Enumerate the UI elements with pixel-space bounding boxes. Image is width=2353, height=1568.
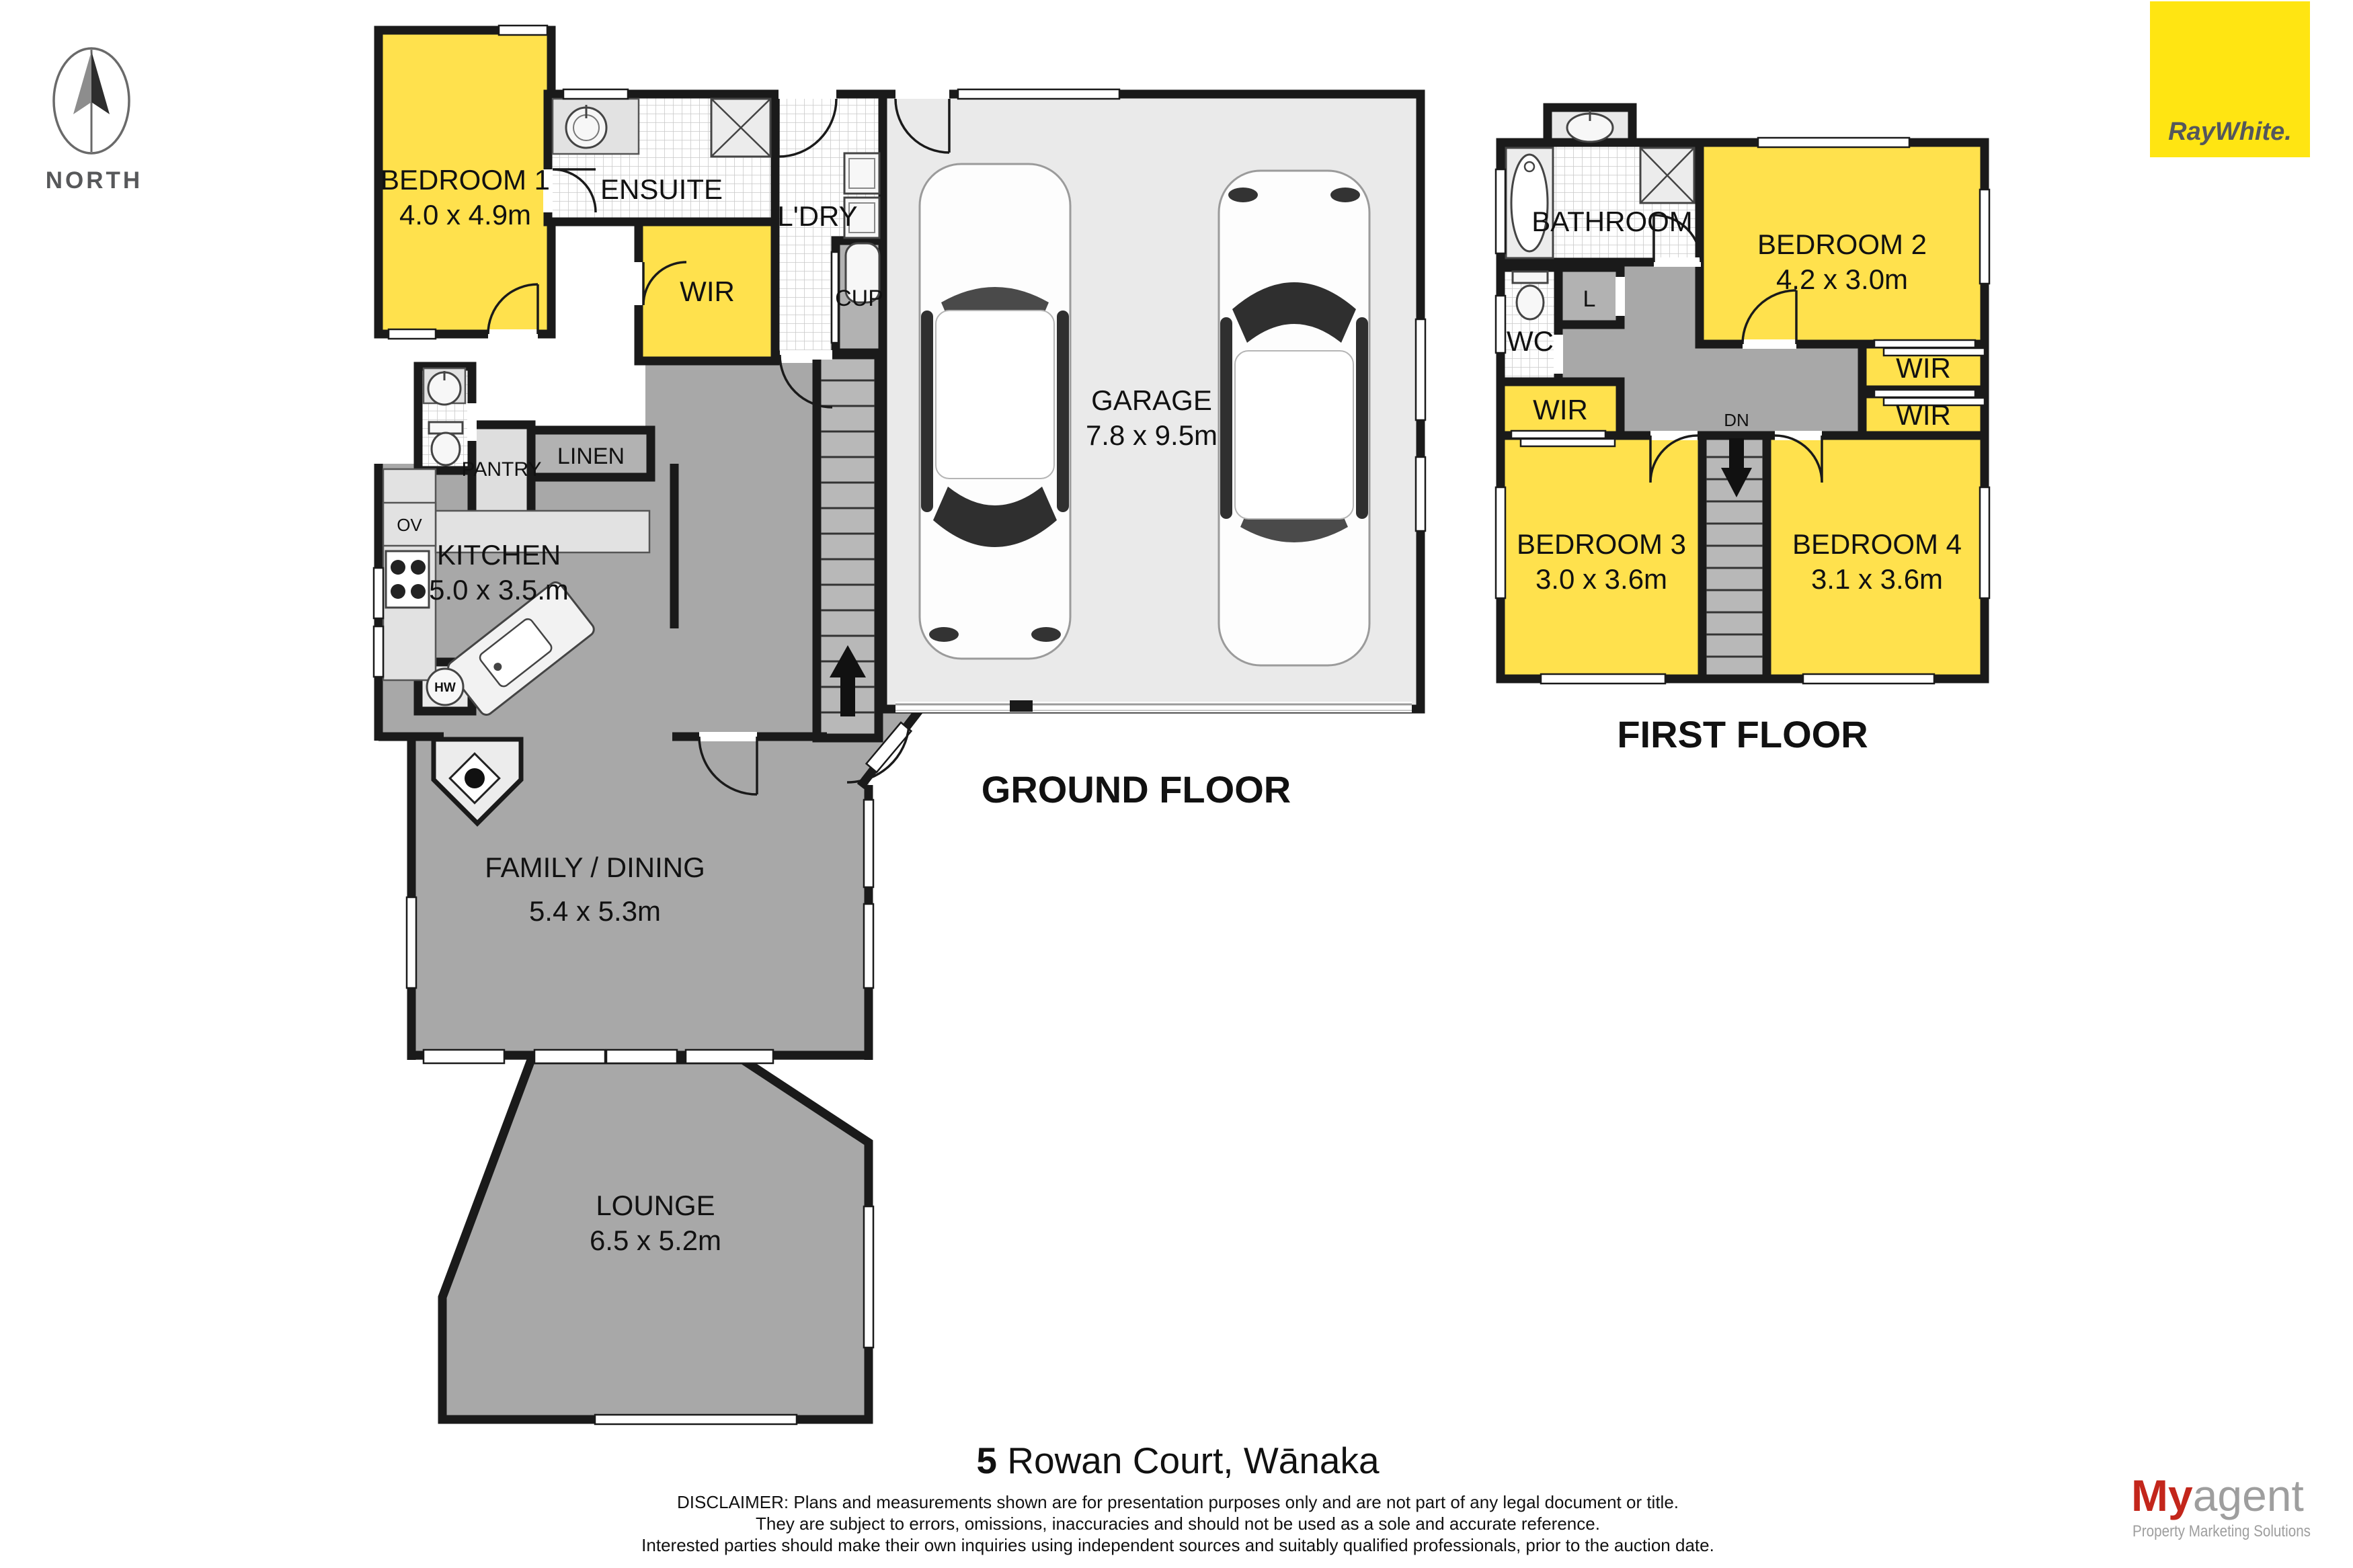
- myagent-agent: agent: [2193, 1471, 2304, 1520]
- bedroom3-dims: 3.0 x 3.6m: [1536, 563, 1667, 595]
- family-dining-label: FAMILY / DINING: [485, 852, 705, 883]
- bedroom1-dims: 4.0 x 4.9m: [399, 199, 531, 231]
- wir-right-lower-label: WIR: [1896, 399, 1951, 431]
- address-number: 5: [976, 1440, 997, 1481]
- kitchen-dims: 5.0 x 3.5.m: [429, 574, 569, 606]
- car-icon: [920, 164, 1070, 659]
- bedroom3-label: BEDROOM 3: [1517, 528, 1686, 560]
- powder-toilet-icon: [429, 422, 463, 465]
- powder-basin-icon: [424, 368, 465, 405]
- garage-label: GARAGE: [1091, 384, 1212, 416]
- myagent-logo: Myagent Property Marketing Solutions: [2131, 1471, 2311, 1540]
- family-dining-dims: 5.4 x 5.3m: [529, 895, 661, 927]
- stove-icon: [386, 551, 429, 608]
- pantry-label: PANTRY: [462, 458, 542, 481]
- bedroom2-dims: 4.2 x 3.0m: [1776, 263, 1908, 295]
- linen-label: LINEN: [557, 444, 625, 469]
- lounge-dims: 6.5 x 5.2m: [590, 1225, 721, 1256]
- myagent-logo-text: Myagent: [2131, 1471, 2304, 1520]
- raywhite-logo: RayWhite.: [2150, 1, 2310, 157]
- bathroom-label: BATHROOM: [1531, 206, 1693, 237]
- ground-floor-plan: HW: [374, 26, 1425, 1424]
- bedroom4-dims: 3.1 x 3.6m: [1811, 563, 1943, 595]
- myagent-tagline: Property Marketing Solutions: [2132, 1522, 2311, 1540]
- disclaimer-line2: They are subject to errors, omissions, i…: [756, 1514, 1600, 1534]
- wir-right-upper-label: WIR: [1896, 352, 1951, 384]
- bedroom4-label: BEDROOM 4: [1792, 528, 1962, 560]
- address-street: Rowan Court, Wānaka: [997, 1440, 1380, 1481]
- cupboard-label: CUP: [835, 286, 883, 311]
- bedroom1-label: BEDROOM 1: [381, 164, 550, 196]
- hot-water-icon: HW: [427, 669, 463, 705]
- garage-dims: 7.8 x 9.5m: [1086, 419, 1218, 451]
- ensuite-shower-icon: [711, 99, 770, 157]
- laundry-label: L'DRY: [777, 200, 857, 232]
- north-compass-icon: NORTH: [46, 48, 143, 194]
- first-floor-title: FIRST FLOOR: [1617, 713, 1868, 755]
- kitchen-label: KITCHEN: [437, 539, 561, 571]
- oven-label: OV: [397, 515, 422, 535]
- raywhite-logo-text: RayWhite.: [2168, 118, 2292, 146]
- first-floor-plan: BATHROOM BEDROOM 2 4.2 x 3.0m L WC WIR W…: [1496, 108, 1989, 755]
- floorplan-page: NORTH: [0, 0, 2353, 1568]
- garage-door: [895, 700, 1412, 712]
- myagent-my: My: [2131, 1471, 2193, 1520]
- ensuite-vanity-icon: [553, 99, 639, 154]
- lounge-label: LOUNGE: [596, 1190, 715, 1221]
- dn-label: DN: [1724, 410, 1749, 430]
- car-icon: [1219, 171, 1369, 665]
- bedroom2-label: BEDROOM 2: [1757, 229, 1927, 260]
- footer: 5 Rowan Court, Wānaka DISCLAIMER: Plans …: [641, 1440, 1714, 1555]
- hw-label: HW: [434, 681, 456, 695]
- wir-ground-label: WIR: [680, 276, 735, 307]
- room-wc: [1501, 267, 1558, 382]
- linen-cupboard-label: L: [1583, 286, 1596, 312]
- wc-label: WC: [1507, 325, 1554, 357]
- disclaimer-line3: Interested parties should make their own…: [641, 1535, 1714, 1555]
- wir-left-label: WIR: [1533, 394, 1588, 425]
- north-label: NORTH: [46, 167, 143, 194]
- disclaimer-line1: DISCLAIMER: Plans and measurements shown…: [677, 1492, 1679, 1512]
- address-title: 5 Rowan Court, Wānaka: [976, 1440, 1380, 1481]
- ground-floor-title: GROUND FLOOR: [982, 768, 1291, 811]
- ff-shower-icon: [1640, 148, 1694, 203]
- floorplan-drawing: NORTH: [0, 0, 2353, 1568]
- ensuite-label: ENSUITE: [600, 173, 723, 205]
- bath-icon: [1506, 148, 1553, 258]
